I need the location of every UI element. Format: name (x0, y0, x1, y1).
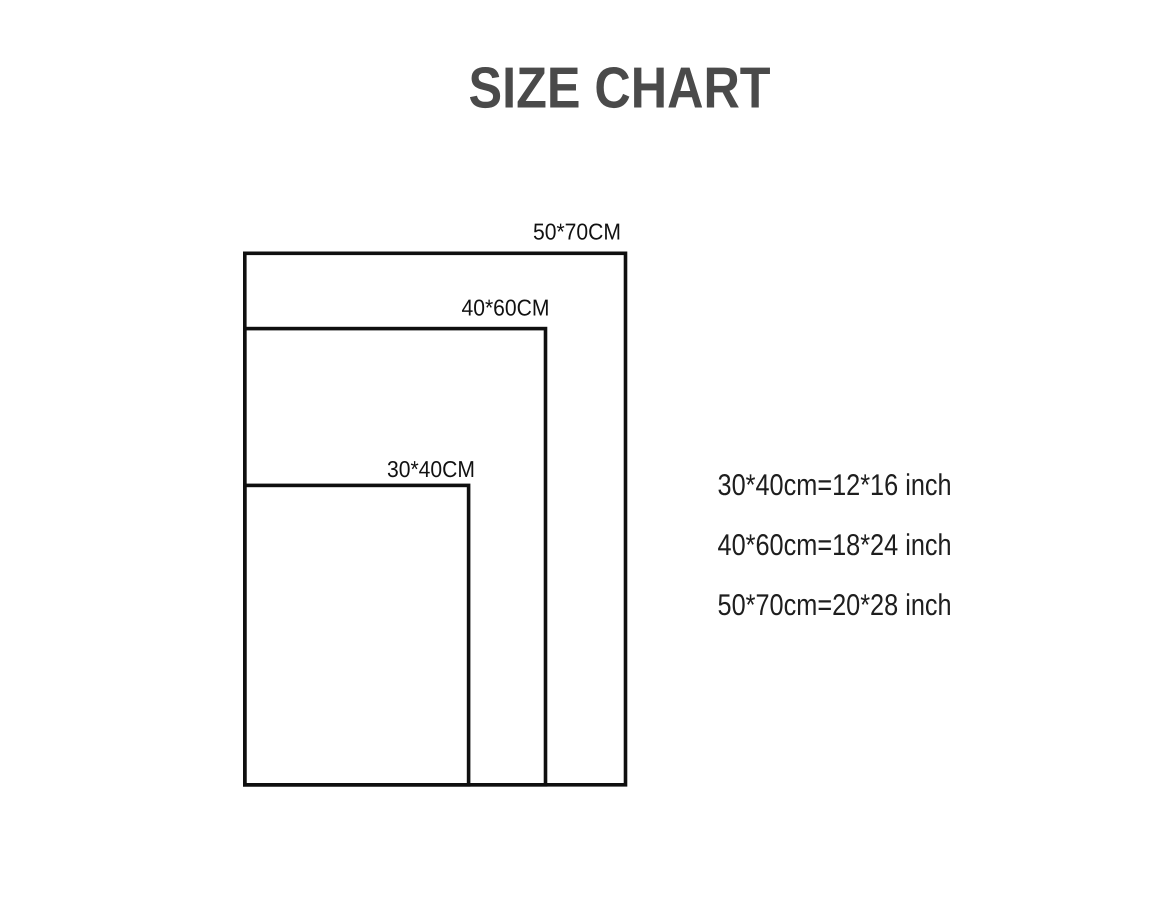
svg-text:30*40cm=12*16 inch: 30*40cm=12*16 inch (718, 469, 952, 502)
svg-text:40*60cm=18*24 inch: 40*60cm=18*24 inch (718, 529, 952, 562)
svg-text:30*40CM: 30*40CM (387, 456, 475, 482)
svg-text:SIZE CHART: SIZE CHART (469, 56, 771, 121)
svg-text:50*70CM: 50*70CM (533, 219, 621, 245)
svg-text:40*60CM: 40*60CM (461, 295, 549, 321)
svg-text:50*70cm=20*28 inch: 50*70cm=20*28 inch (718, 589, 952, 622)
